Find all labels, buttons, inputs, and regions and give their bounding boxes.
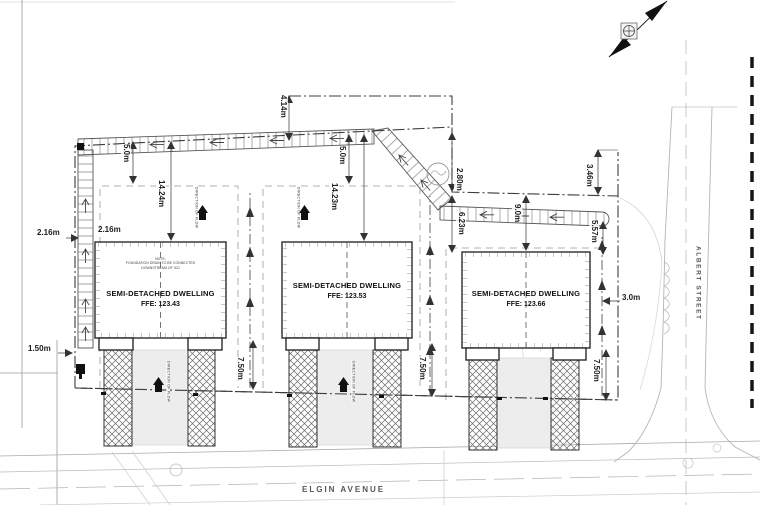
building-1-note: NOTE: FOUNDATION DRAIN TO BE CONNECTED D… — [95, 257, 226, 270]
direction-of-flow-label: DIRECTION OF FLOW — [166, 361, 170, 402]
dimension-label-5-57m: 5.57m — [589, 220, 599, 243]
dimension-label-14-23m: 14.23m — [329, 183, 339, 210]
site-plan-page: 4.14m 5.0m 14.24m 5.0m 14.23m 2.80m 6.23… — [0, 0, 760, 505]
dimension-label-5-0m-left: 5.0m — [121, 144, 131, 162]
dimension-label-6-23m: 6.23m — [456, 212, 466, 235]
building-1-label: SEMI-DETACHED DWELLING FFE: 123.43 — [95, 289, 226, 308]
tree-icon — [427, 163, 449, 185]
building-1-title: SEMI-DETACHED DWELLING — [95, 289, 226, 298]
building-1-ffe: FFE: 123.43 — [95, 301, 226, 308]
building-3-title: SEMI-DETACHED DWELLING — [462, 289, 590, 298]
dimension-label-7-50m-lot3: 7.50m — [591, 359, 601, 382]
dimension-label-2-80m: 2.80m — [454, 168, 464, 191]
building-2-ffe: FFE: 123.53 — [282, 293, 412, 300]
street-label-elgin-avenue: ELGIN AVENUE — [302, 486, 385, 494]
dimension-label-3-0m: 3.0m — [621, 294, 641, 302]
building-2-title: SEMI-DETACHED DWELLING — [282, 281, 412, 290]
dimension-label-9-0m: 9.0m — [512, 204, 522, 222]
north-arrow-icon — [609, 1, 667, 57]
direction-of-flow-label: DIRECTION OF FLOW — [351, 361, 355, 402]
dimension-label-7-50m-lot1: 7.50m — [235, 357, 245, 380]
site-plan-drawing — [0, 0, 760, 505]
dimension-label-4-14m: 4.14m — [278, 95, 288, 118]
street-label-albert-street: ALBERT STREET — [694, 246, 701, 321]
dimension-label-5-0m-center: 5.0m — [337, 146, 347, 164]
dimension-label-1-50m: 1.50m — [27, 345, 52, 353]
dimension-label-2-16m-right: 2.16m — [97, 226, 122, 234]
building-1-note-line3: DOWNSTREAM OF ICD — [95, 266, 226, 270]
direction-of-flow-label: DIRECTION OF FLOW — [296, 187, 300, 228]
dimension-label-2-16m-left: 2.16m — [36, 229, 61, 237]
building-3-label: SEMI-DETACHED DWELLING FFE: 123.66 — [462, 289, 590, 308]
elgin-avenue-road-lines — [0, 441, 760, 505]
direction-of-flow-label: DIRECTION OF FLOW — [194, 187, 198, 228]
building-2-label: SEMI-DETACHED DWELLING FFE: 123.53 — [282, 281, 412, 300]
albert-street-road-lines — [614, 40, 760, 505]
dimension-label-7-50m-lot2: 7.50m — [417, 357, 427, 380]
building-3-ffe: FFE: 123.66 — [462, 301, 590, 308]
dimension-label-3-46m: 3.46m — [584, 164, 594, 187]
dimension-label-14-24m: 14.24m — [156, 180, 166, 207]
